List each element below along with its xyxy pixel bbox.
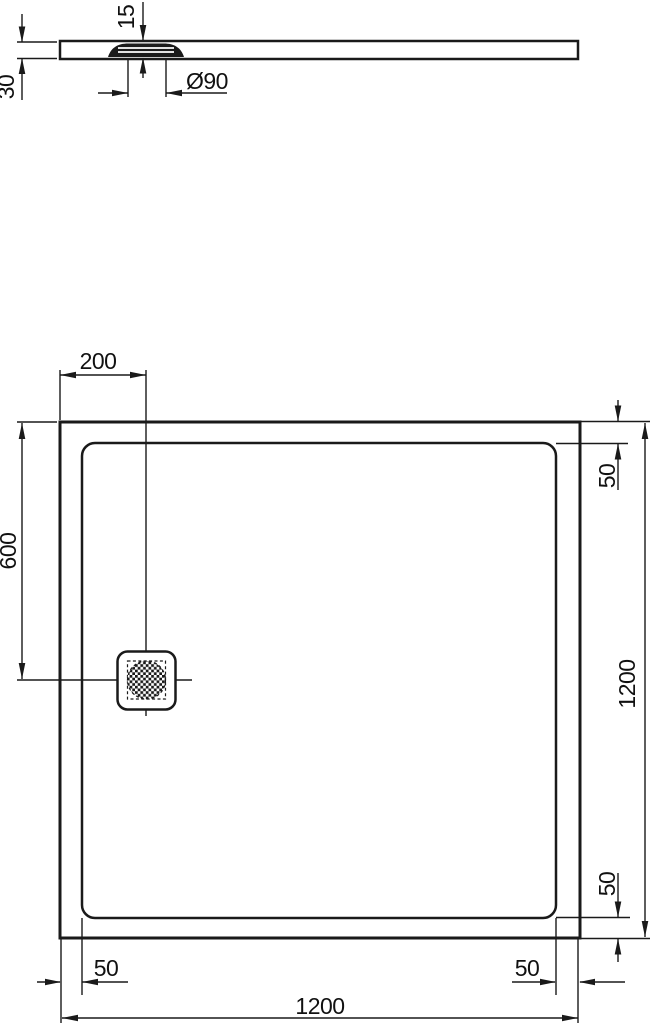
dim-label-drain-diameter: Ø90 bbox=[186, 68, 228, 94]
dim-label-tray-height: 30 bbox=[0, 75, 19, 100]
arrowhead-down bbox=[615, 406, 622, 422]
arrowhead-up bbox=[642, 423, 649, 439]
dim-label-drain-recess: 15 bbox=[113, 5, 139, 30]
profile-view: 30 15 Ø90 bbox=[0, 2, 578, 100]
dimension-tray-height: 30 bbox=[0, 14, 57, 100]
arrowhead-left bbox=[62, 1015, 78, 1022]
drain-profile bbox=[108, 44, 184, 58]
technical-drawing-page: 30 15 Ø90 bbox=[0, 0, 652, 1024]
dim-label-drain-offset-vertical: 600 bbox=[0, 533, 21, 570]
drain-grate-circle bbox=[128, 661, 166, 699]
arrowhead-down bbox=[19, 663, 26, 679]
arrowhead-right bbox=[45, 979, 61, 986]
arrowhead-up bbox=[615, 939, 622, 955]
arrowhead-left bbox=[166, 90, 182, 97]
dim-label-overall-height: 1200 bbox=[614, 659, 640, 708]
dimension-overall-height: 1200 bbox=[580, 423, 650, 939]
arrowhead-down bbox=[19, 27, 26, 43]
dimension-drain-diameter: Ø90 bbox=[98, 60, 228, 97]
arrowhead-left bbox=[579, 979, 595, 986]
dimension-drain-offset-vertical: 600 bbox=[0, 422, 57, 679]
arrowhead-down bbox=[140, 25, 147, 41]
dim-label-rim-bottom-left: 50 bbox=[94, 955, 119, 981]
arrowhead-right bbox=[562, 1015, 578, 1022]
arrowhead-right bbox=[112, 90, 128, 97]
dim-label-rim-bottom-right-horizontal: 50 bbox=[515, 955, 540, 981]
arrowhead-up bbox=[19, 58, 26, 74]
arrowhead-up bbox=[19, 423, 26, 439]
arrowhead-down bbox=[642, 921, 649, 937]
arrowhead-up bbox=[615, 444, 622, 460]
dim-label-rim-top-right: 50 bbox=[594, 464, 620, 489]
dim-label-rim-bottom-right-vertical: 50 bbox=[594, 872, 620, 897]
shower-tray-dimension-drawing: 30 15 Ø90 bbox=[0, 0, 652, 1024]
arrowhead-down bbox=[615, 902, 622, 918]
dimension-overall-width: 1200 bbox=[61, 938, 578, 1023]
drain-profile-dome bbox=[108, 44, 184, 58]
arrowhead-left bbox=[60, 372, 76, 379]
drain-grate bbox=[118, 652, 176, 710]
dimension-drain-offset-horizontal: 200 bbox=[60, 348, 146, 420]
dim-label-drain-offset-horizontal: 200 bbox=[80, 348, 117, 374]
plan-view: 200 600 50 1200 bbox=[0, 348, 650, 1023]
arrowhead-right bbox=[130, 372, 146, 379]
dim-label-overall-width: 1200 bbox=[295, 993, 344, 1019]
arrowhead-right bbox=[540, 979, 556, 986]
